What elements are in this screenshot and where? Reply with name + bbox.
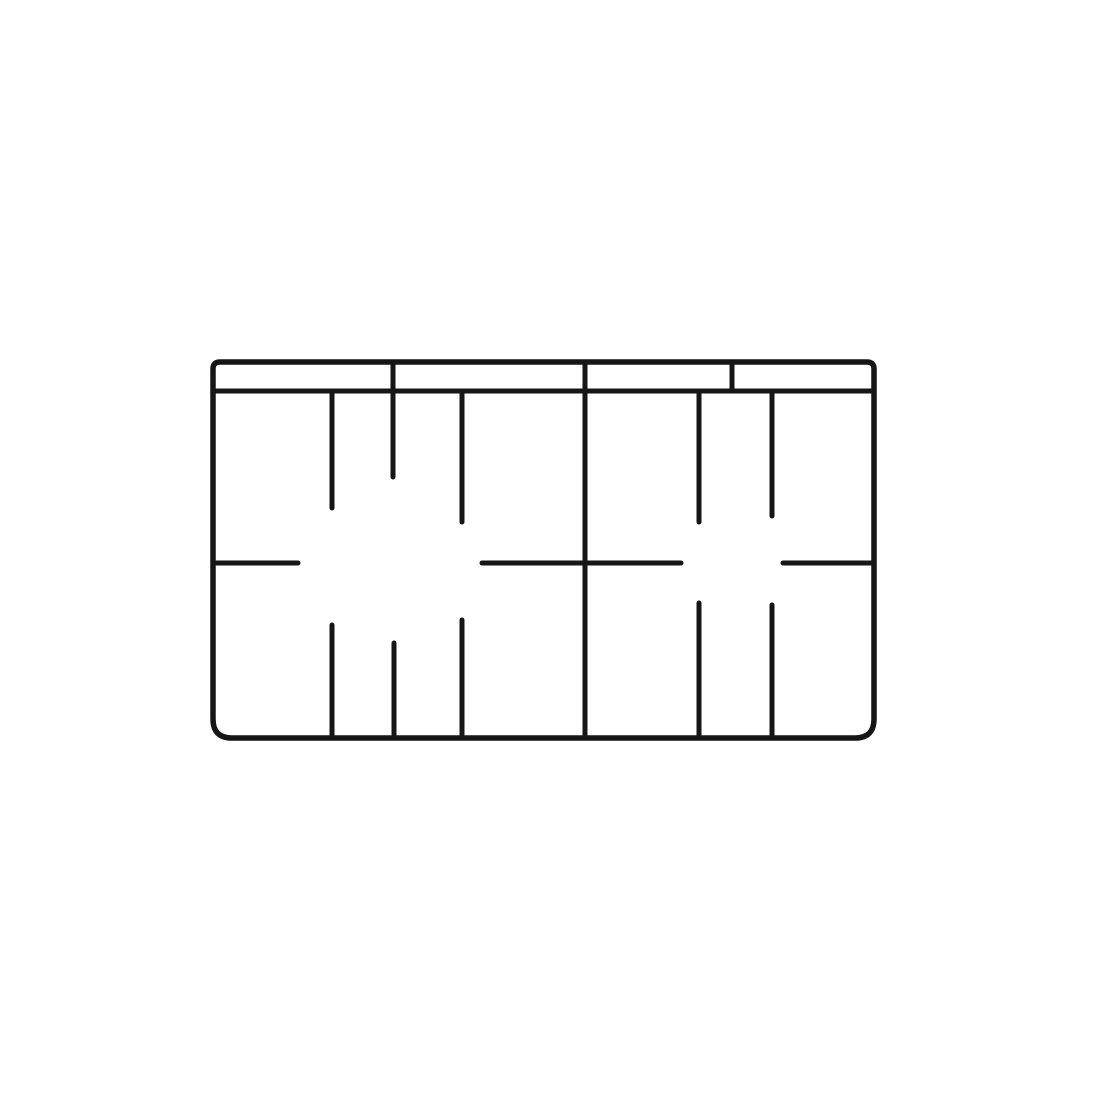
outer-frame — [213, 362, 874, 738]
figure-page — [0, 0, 1100, 1100]
partition-grid-figure — [0, 0, 1100, 1100]
